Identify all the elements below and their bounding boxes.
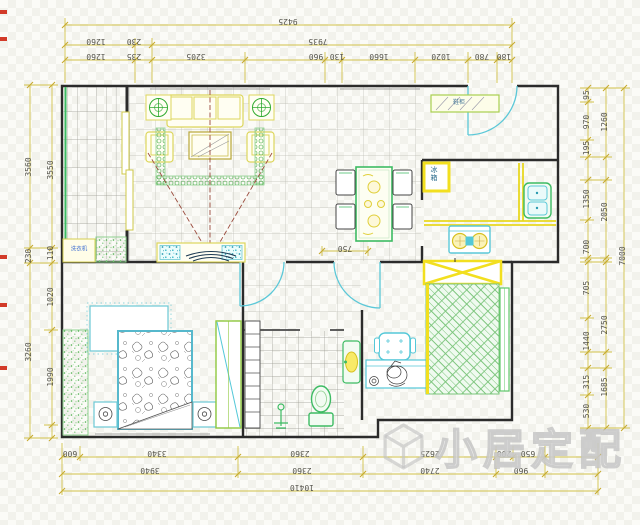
dim-label: 2360 [292,466,311,474]
dim-label: 1350 [583,189,591,208]
floorplan-canvas: 9425 1260 230 7935 1260 235 3205 960 130… [0,0,640,525]
dim-label: 1660 [369,52,388,60]
dim-label: 1020 [47,287,55,306]
dim-label: 1440 [583,331,591,350]
dim-label: 2750 [601,315,609,334]
dim-label: 3205 [186,52,205,60]
dim-label: 705 [583,281,591,295]
edge-mark [0,10,7,14]
dim-label: 1260 [86,37,105,45]
edge-mark [0,303,7,307]
dim-label: 1020 [431,52,450,60]
dim-label: 110 [47,246,55,260]
dim-label: 1685 [601,377,609,396]
edge-mark [0,366,7,370]
dim-label: 130 [330,52,344,60]
dining-table [356,167,392,241]
dim-label: 7000 [619,246,627,265]
dim-label: 230 [25,249,33,263]
kitchen [424,163,556,253]
dim-label: 235 [127,52,141,60]
dim-label: 1260 [601,112,609,131]
dim-label: 200 [497,449,511,457]
shoe-cabinet-label: 鞋柜 [453,100,465,106]
toilet-bowl [312,386,331,412]
dim-label: 3260 [25,342,33,361]
bedroom-1 [63,303,260,435]
bedroom-2 [366,258,509,394]
dim-label: 960 [514,466,528,474]
dim-label: 9425 [278,17,297,25]
washbasin [346,352,358,372]
desk-chair [379,333,410,360]
dim-label: 700 [583,240,591,254]
dim-label: 2360 [290,449,309,457]
wardrobe-speckle [63,330,88,435]
dim-label: 650 [521,449,535,457]
nightstand [193,402,216,427]
dim-label: 10410 [290,483,314,491]
dim-label: 780 [475,52,489,60]
washing-machine-label: 洗衣机 [71,247,88,253]
dim-label: 3340 [147,449,166,457]
dim-label: 2050 [601,202,609,221]
edge-mark [0,255,7,259]
dim-label: 195 [583,141,591,155]
nightstand [94,402,117,427]
dim-label: 2740 [420,466,439,474]
dim-label: 3560 [25,157,33,176]
dim-label: 600 [63,449,77,457]
dim-label: 3940 [140,466,159,474]
dim-label: 1260 [86,52,105,60]
bed2-mattress [426,284,499,394]
dim-label: 180 [497,52,511,60]
dim-label: 960 [309,52,323,60]
dim-label: 3550 [47,160,55,179]
dim-label: 315 [583,375,591,389]
dim-label: 530 [583,404,591,418]
dim-label: 7935 [308,37,327,45]
toilet-tank [309,413,333,426]
planter-speckle [96,237,126,262]
dim-label: 1990 [47,367,55,386]
dim-label: 2625 [420,449,439,457]
dim-label: 230 [127,37,141,45]
dim-label: 95 [583,90,591,100]
fridge-label: 冰箱 [430,166,437,182]
floor-plan-drawing [0,0,640,525]
dim-label-dining-clearance: 750 [338,244,352,252]
edge-mark [0,37,7,41]
dim-label: 970 [583,115,591,129]
